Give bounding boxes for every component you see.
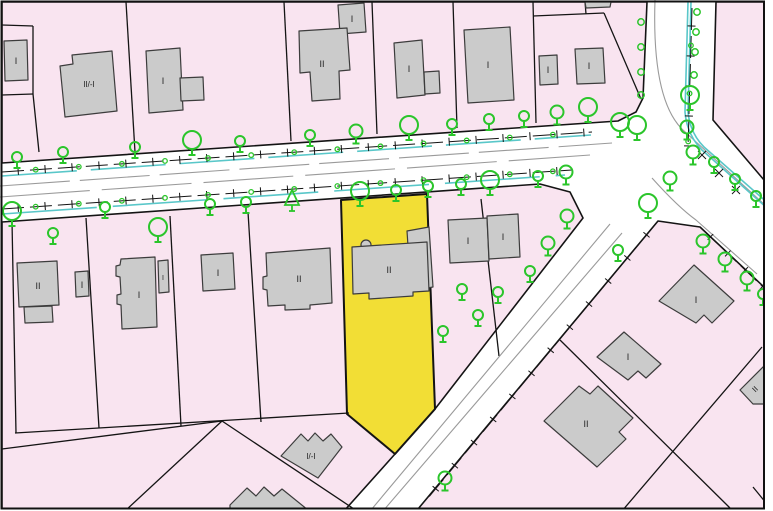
boundary-tick-icon [99,161,100,169]
boundary-tick-icon [449,138,450,146]
building: II [263,248,332,310]
storey-label: I/-I [306,452,315,461]
boundary-tick-icon [341,182,342,190]
boundary-tick-icon [503,171,504,179]
building: I [4,40,28,81]
storey-label: I [588,61,591,71]
storey-label: II [319,59,324,69]
boundary-tick-icon [557,167,558,175]
boundary-tick-icon [153,158,154,166]
storey-label: I [15,56,18,66]
boundary-tick-icon [287,185,288,193]
building: I [116,257,157,329]
boundary-tick-icon [449,174,450,182]
building: I [394,40,425,98]
boundary-tick-icon [476,136,477,144]
boundary-tick-icon [233,189,234,197]
storey-label: I [162,275,164,282]
storey-label: II [35,281,40,291]
storey-label: I [408,64,411,74]
boundary-tick-icon [341,145,342,153]
building: II [17,261,59,307]
boundary-tick-icon [180,156,181,164]
boundary-tick-icon [153,195,154,203]
building [585,2,611,8]
boundary-tick-icon [557,130,558,138]
boundary-tick-icon [503,134,504,142]
boundary-tick-icon [45,202,46,210]
boundary-tick-icon [126,160,127,168]
boundary-tick-icon [126,197,127,205]
cadastral-map: III/-IIIIIIIIIIIIIIIIIIIIIII/-IIIIIII [0,0,773,511]
storey-label: II [583,419,588,429]
storey-label: II/-I [83,80,95,89]
boundary-tick-icon [99,198,100,206]
cadastral-map-viewport: III/-IIIIIIIIIIIIIIIIIIIIIII/-IIIIIII [0,0,773,511]
boundary-tick-icon [584,129,585,137]
boundary-tick-icon [72,163,73,171]
storey-label: I [487,60,490,70]
building: I [201,253,235,291]
building: I [75,271,89,297]
building [424,71,440,94]
storey-label: I [351,14,354,24]
boundary-tick-icon [45,165,46,173]
storey-label: I [627,352,630,362]
storey-label: I [138,290,141,300]
storey-label: I [695,295,698,305]
building: I [146,48,183,113]
boundary-tick-icon [260,187,261,195]
boundary-tick-icon [530,132,531,140]
building [180,77,204,101]
storey-label: I [467,236,470,246]
building: I [487,214,520,259]
boundary-tick-icon [233,152,234,160]
boundary-tick-icon [260,150,261,158]
storey-label: I [81,280,84,290]
boundary-tick-icon [530,169,531,177]
building: I [539,55,558,85]
boundary-tick-icon [287,149,288,157]
building: I [158,260,169,293]
building: I [464,27,514,103]
storey-label: I [547,65,550,75]
building: I [448,218,489,263]
boundary-tick-icon [314,147,315,155]
building: I [575,48,605,84]
map-margin [765,0,773,511]
storey-label: II [296,274,301,284]
boundary-tick-icon [180,193,181,201]
boundary-tick-icon [314,184,315,192]
boundary-tick-icon [476,173,477,181]
storey-label: I [502,232,505,242]
storey-label: I [162,76,165,86]
boundary-tick-icon [72,200,73,208]
boundary-tick-icon [368,143,369,151]
building-highlighted-main: II [352,240,429,299]
storey-label: II [386,265,391,275]
building [24,306,53,323]
storey-label: I [217,268,220,278]
boundary-tick-icon [395,141,396,149]
